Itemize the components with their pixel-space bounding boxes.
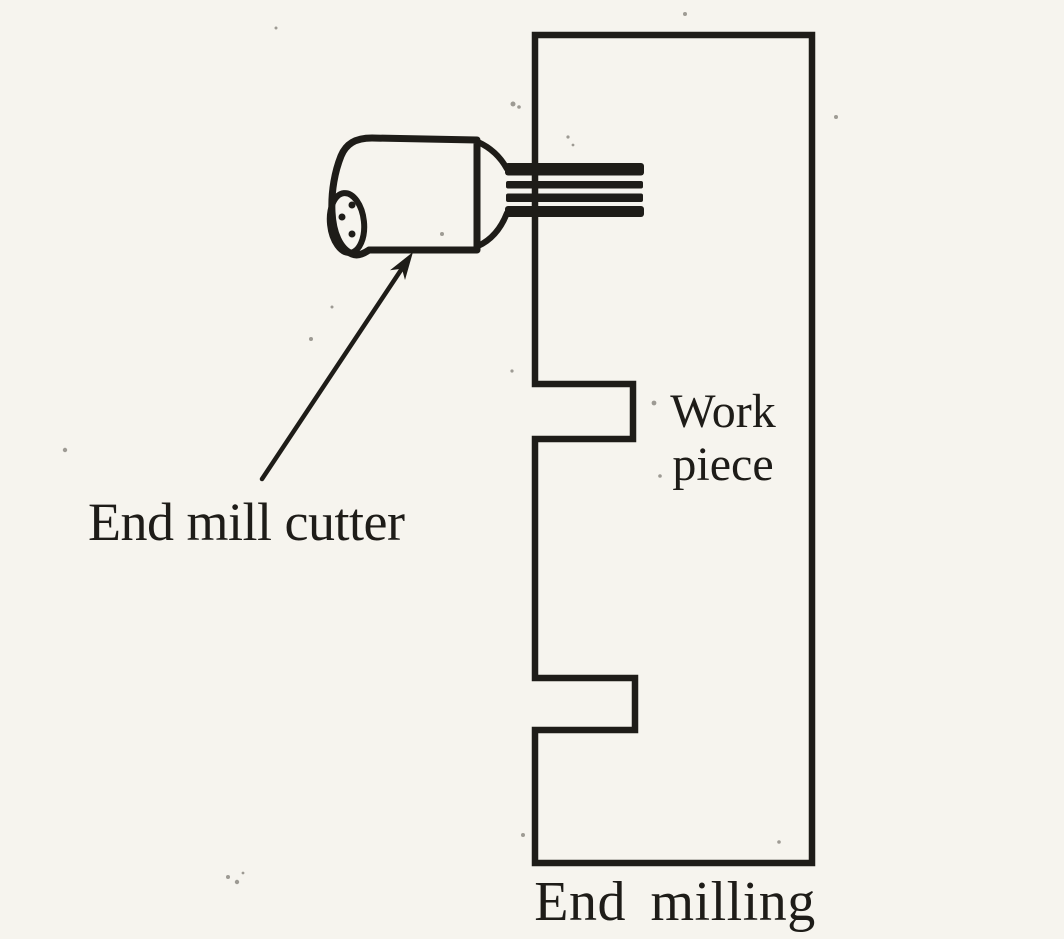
cutter-end-face-dot bbox=[349, 231, 356, 238]
end-mill-cutter-label: End mill cutter bbox=[88, 495, 404, 549]
end-mill-cutter bbox=[327, 138, 644, 255]
workpiece-label: Workpiece bbox=[670, 385, 775, 491]
cutter-shank-flute bbox=[506, 181, 643, 189]
cutter-shank-flute bbox=[506, 194, 643, 203]
cutter-shank bbox=[505, 163, 644, 217]
cutter-end-face-dot bbox=[349, 202, 356, 209]
cutter-shank-flute bbox=[505, 163, 644, 176]
cutter-neck-bottom bbox=[478, 213, 507, 246]
diagram-canvas: End mill cutter Workpiece End milling bbox=[0, 0, 1064, 939]
workpiece-label-line1: Work bbox=[670, 385, 775, 438]
end-milling-diagram bbox=[0, 0, 1064, 939]
cutter-end-face-dot bbox=[339, 214, 346, 221]
caption-end-milling: End milling bbox=[525, 874, 825, 930]
leader-arrow bbox=[262, 252, 413, 479]
workpiece-label-line2: piece bbox=[672, 438, 773, 491]
cutter-neck-top bbox=[478, 142, 507, 169]
leader-arrow-head bbox=[390, 252, 413, 280]
cutter-shank-flute bbox=[505, 206, 644, 217]
leader-arrow-line bbox=[262, 267, 403, 479]
